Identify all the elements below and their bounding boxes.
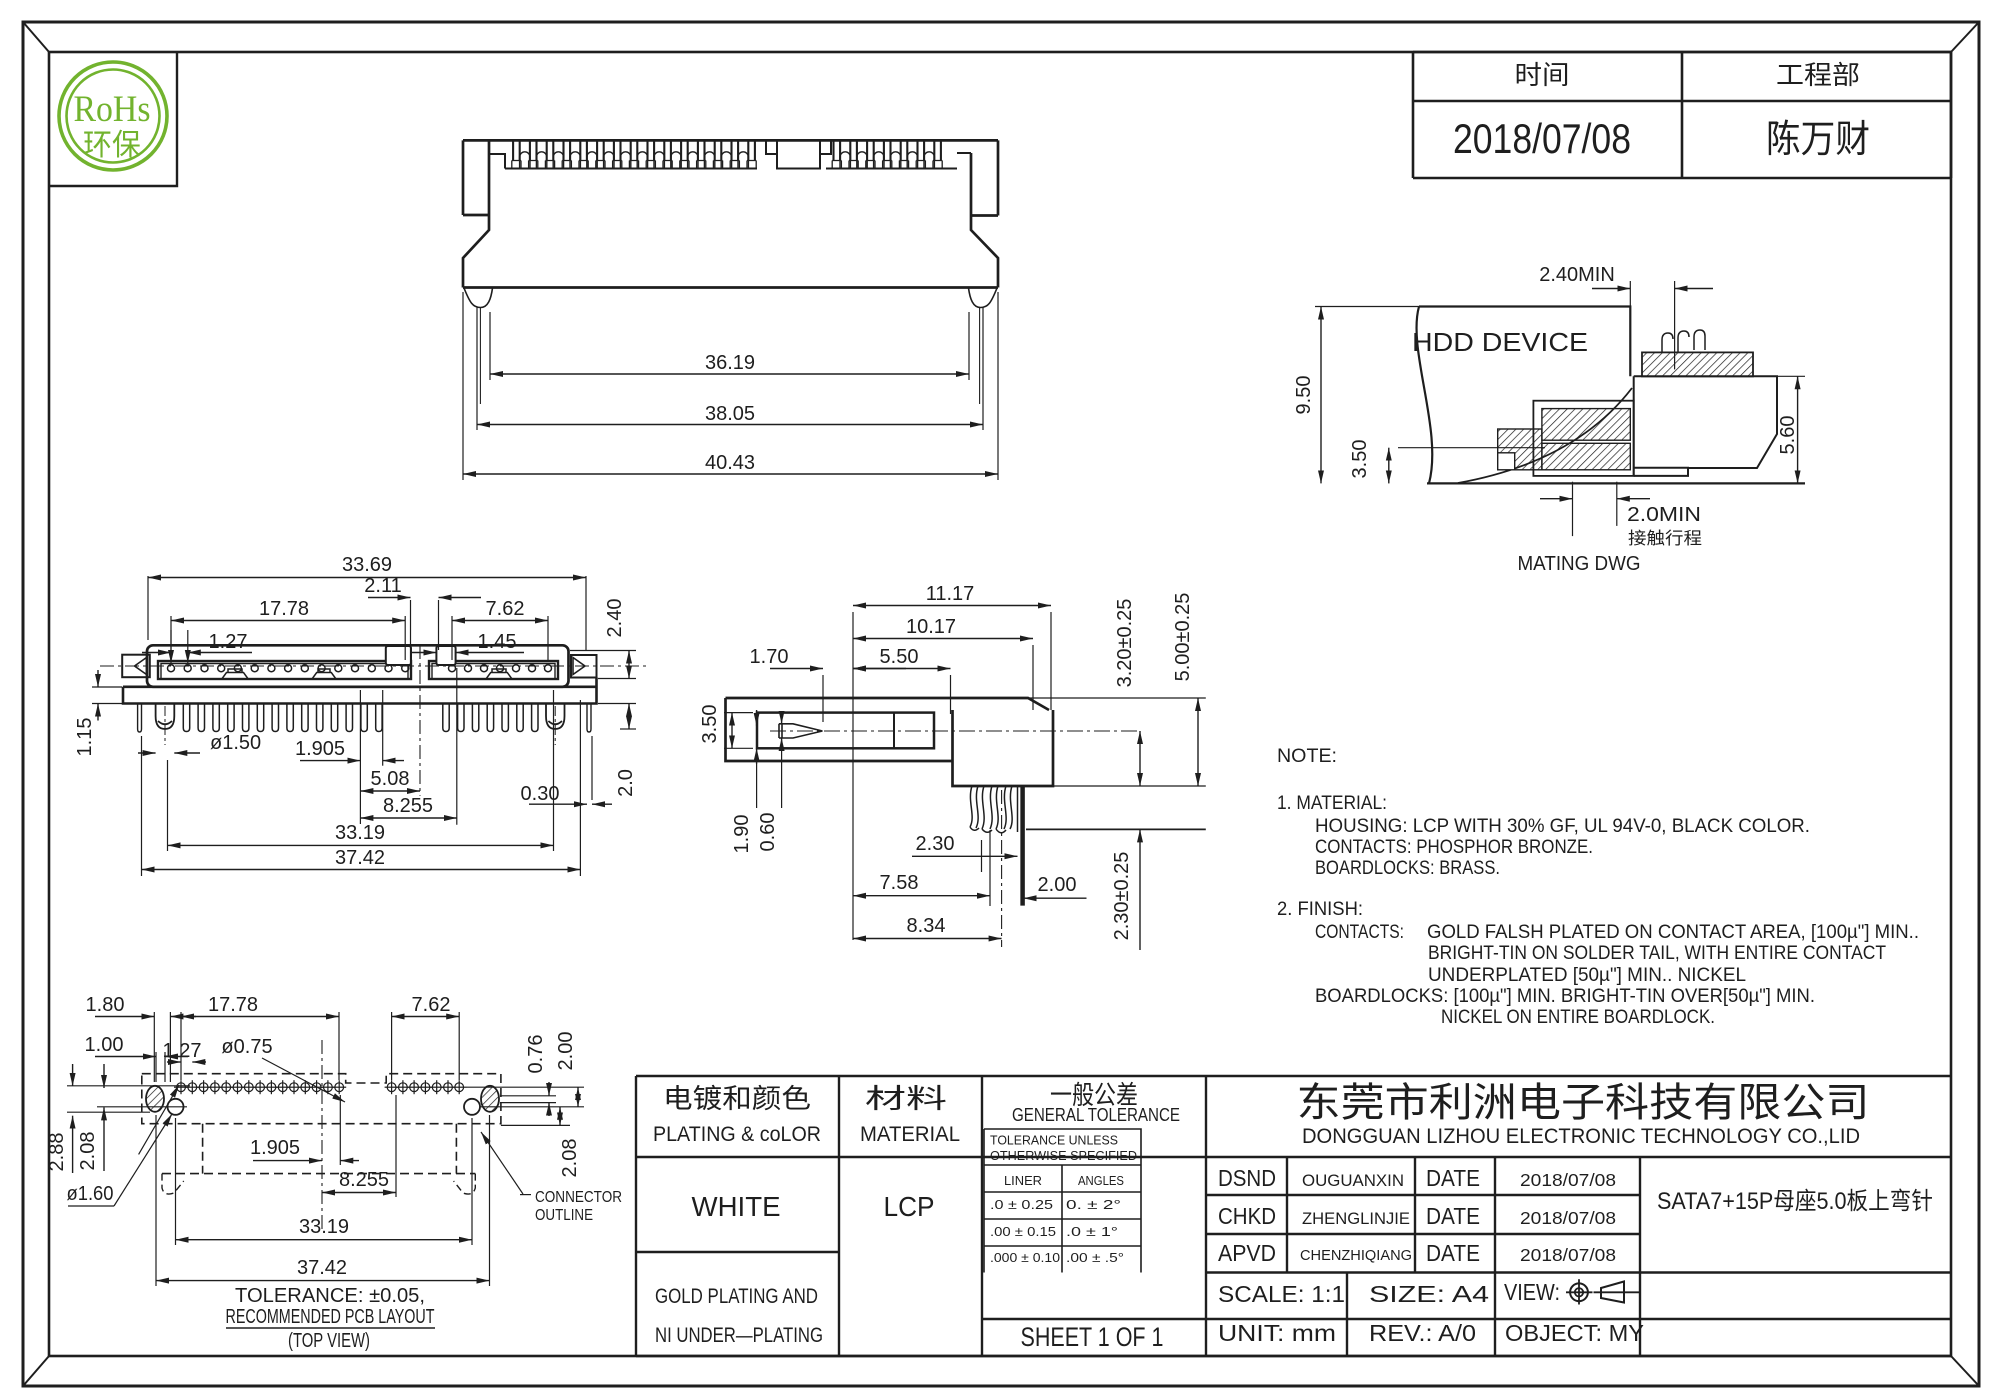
svg-text:1.27: 1.27 [209,631,248,653]
svg-text:DATE: DATE [1426,1203,1480,1229]
svg-text:SHEET 1 OF 1: SHEET 1 OF 1 [1021,1322,1164,1352]
svg-text:2018/07/08: 2018/07/08 [1520,1245,1616,1265]
svg-text:RoHs: RoHs [74,89,151,130]
svg-text:东莞市利洲电子科技有限公司: 东莞市利洲电子科技有限公司 [1297,1081,1870,1125]
svg-text:33.69: 33.69 [342,554,392,576]
svg-text:WHITE: WHITE [692,1191,781,1222]
svg-text:DONGGUAN LIZHOU ELECTRONIC TEC: DONGGUAN LIZHOU ELECTRONIC TECHNOLOGY CO… [1302,1125,1860,1148]
svg-text:VIEW:: VIEW: [1504,1279,1560,1305]
svg-text:CONTACTS: PHOSPHOR BRONZE.: CONTACTS: PHOSPHOR BRONZE. [1315,837,1593,858]
svg-text:38.05: 38.05 [705,403,755,425]
svg-text:BRIGHT-TIN ON SOLDER TAIL,: BRIGHT-TIN ON SOLDER TAIL, WITH ENTIRE C… [1428,943,1886,964]
svg-text:2.0MIN: 2.0MIN [1627,504,1701,526]
svg-text:0. ± 2°: 0. ± 2° [1066,1197,1121,1212]
svg-text:ANGLES: ANGLES [1078,1174,1124,1188]
svg-text:HOUSING: LCP WITH 30% GF,: HOUSING: LCP WITH 30% GF, UL 94V-0, BLAC… [1315,816,1810,837]
svg-text:9.50: 9.50 [1293,376,1315,415]
svg-text:8.255: 8.255 [383,795,433,817]
svg-text:10.17: 10.17 [906,616,956,638]
svg-text:ø1.50: ø1.50 [210,732,261,754]
svg-text:RECOMMENDED PCB LAYOUT: RECOMMENDED PCB LAYOUT [226,1306,435,1328]
svg-text:CONTACTS:: CONTACTS: [1315,922,1404,943]
svg-text:NOTE:: NOTE: [1277,746,1337,767]
svg-text:ø1.60: ø1.60 [67,1183,114,1205]
svg-text:2.08: 2.08 [77,1132,99,1171]
svg-text:LINER: LINER [1004,1173,1042,1188]
svg-text:2.88: 2.88 [46,1133,68,1172]
svg-text:NICKEL ON ENTIRE BOARDLOCK.: NICKEL ON ENTIRE BOARDLOCK. [1441,1007,1715,1028]
svg-text:TOLERANCE: ±0.05,: TOLERANCE: ±0.05, [235,1285,425,1307]
svg-text:MATERIAL: MATERIAL [860,1123,960,1146]
svg-text:2.11: 2.11 [364,575,401,597]
svg-text:2.30±0.25: 2.30±0.25 [1111,852,1133,941]
svg-text:5.00±0.25: 5.00±0.25 [1172,593,1194,682]
svg-text:接触行程: 接触行程 [1628,529,1702,548]
svg-text:BOARDLOCKS: BRASS.: BOARDLOCKS: BRASS. [1315,858,1500,879]
svg-text:GOLD PLATING AND: GOLD PLATING AND [655,1285,818,1308]
svg-text:.0 ± 1°: .0 ± 1° [1066,1224,1118,1239]
svg-text:BOARDLOCKS: [100µ"] MIN. BR: BOARDLOCKS: [100µ"] MIN. BRIGHT-TIN OVER… [1315,986,1815,1007]
svg-text:CHKD: CHKD [1218,1203,1276,1229]
svg-text:2.0: 2.0 [615,769,637,797]
svg-text:1.70: 1.70 [750,646,789,668]
svg-text:SCALE: 1:1: SCALE: 1:1 [1218,1281,1345,1307]
svg-text:UNDERPLATED [50µ"] MIN..: UNDERPLATED [50µ"] MIN.. NICKEL [1428,965,1746,986]
svg-text:17.78: 17.78 [208,994,258,1016]
svg-text:37.42: 37.42 [297,1257,347,1279]
svg-text:5.08: 5.08 [371,768,410,790]
svg-text:1.00: 1.00 [85,1034,124,1056]
svg-text:37.42: 37.42 [335,847,385,869]
svg-text:NI UNDER—PLATING: NI UNDER—PLATING [655,1324,823,1347]
svg-text:DSND: DSND [1218,1165,1276,1191]
svg-text:1.15: 1.15 [74,718,96,757]
svg-text:TOLERANCE UNLESS: TOLERANCE UNLESS [990,1133,1118,1148]
svg-text:2018/07/08: 2018/07/08 [1453,115,1631,162]
svg-text:17.78: 17.78 [259,598,309,620]
svg-text:1.27: 1.27 [163,1040,202,1062]
svg-text:.0 ± 0.25: .0 ± 0.25 [990,1197,1053,1212]
svg-text:2.00: 2.00 [1038,874,1077,896]
svg-text:7.62: 7.62 [486,598,525,620]
svg-text:0.60: 0.60 [757,813,779,852]
svg-text:电镀和颜色: 电镀和颜色 [663,1084,811,1114]
svg-text:SATA7+15P母座5.0板上弯针: SATA7+15P母座5.0板上弯针 [1657,1188,1933,1215]
svg-text:2.30: 2.30 [916,833,955,855]
svg-text:2.08: 2.08 [559,1139,581,1178]
svg-text:REV.: A/0: REV.: A/0 [1369,1320,1476,1346]
svg-text:DATE: DATE [1426,1165,1480,1191]
svg-text:.00 ± .5°: .00 ± .5° [1066,1250,1124,1265]
svg-text:OUGUANXIN: OUGUANXIN [1302,1171,1404,1190]
svg-text:材料: 材料 [865,1084,947,1114]
svg-text:3.50: 3.50 [1349,440,1371,479]
svg-text:2.40: 2.40 [604,599,626,638]
svg-text:CONNECTOR: CONNECTOR [535,1189,622,1206]
svg-text:UNIT: mm: UNIT: mm [1218,1320,1336,1346]
svg-text:.00 ± 0.15: .00 ± 0.15 [990,1224,1056,1239]
svg-text:2.00: 2.00 [555,1032,577,1071]
svg-text:GENERAL TOLERANCE: GENERAL TOLERANCE [1012,1105,1180,1125]
svg-text:.000 ± 0.10: .000 ± 0.10 [990,1250,1060,1265]
svg-text:40.43: 40.43 [705,452,755,474]
svg-text:33.19: 33.19 [335,822,385,844]
svg-text:8.255: 8.255 [339,1169,389,1191]
svg-text:3.50: 3.50 [699,705,721,744]
svg-text:PLATING & coLOR: PLATING & coLOR [653,1123,821,1146]
svg-text:1.80: 1.80 [86,994,125,1016]
svg-text:LCP: LCP [884,1191,935,1222]
svg-text:MATING DWG: MATING DWG [1518,553,1641,575]
svg-text:工程部: 工程部 [1776,60,1860,90]
svg-text:1.45: 1.45 [478,631,517,653]
svg-text:0.76: 0.76 [525,1035,547,1074]
svg-text:33.19: 33.19 [299,1216,349,1238]
svg-text:环保: 环保 [83,129,141,162]
svg-text:2.40MIN: 2.40MIN [1539,264,1615,286]
svg-text:ZHENGLINJIE: ZHENGLINJIE [1302,1209,1410,1228]
svg-text:5.60: 5.60 [1777,416,1799,455]
svg-text:3.20±0.25: 3.20±0.25 [1114,599,1136,688]
svg-text:APVD: APVD [1218,1240,1276,1266]
svg-text:1. MATERIAL:: 1. MATERIAL: [1277,793,1387,814]
svg-text:11.17: 11.17 [926,583,975,605]
svg-text:OUTLINE: OUTLINE [535,1207,593,1224]
svg-text:OTHERWISE SPECIFIED: OTHERWISE SPECIFIED [990,1148,1137,1163]
svg-text:5.50: 5.50 [880,646,919,668]
svg-text:陈万财: 陈万财 [1766,119,1870,161]
svg-text:2018/07/08: 2018/07/08 [1520,1208,1616,1228]
svg-text:2018/07/08: 2018/07/08 [1520,1170,1616,1190]
svg-text:1.905: 1.905 [295,738,345,760]
svg-text:SIZE: A4: SIZE: A4 [1369,1281,1489,1307]
svg-text:CHENZHIQIANG: CHENZHIQIANG [1300,1247,1412,1264]
svg-text:36.19: 36.19 [705,352,755,374]
svg-text:(TOP VIEW): (TOP VIEW) [288,1330,370,1352]
svg-text:GOLD FALSH PLATED ON CONTA: GOLD FALSH PLATED ON CONTACT AREA, [100µ… [1427,922,1919,943]
svg-text:时间: 时间 [1515,60,1570,90]
svg-text:7.58: 7.58 [880,872,919,894]
svg-text:HDD DEVICE: HDD DEVICE [1412,327,1588,357]
svg-text:ø0.75: ø0.75 [221,1036,272,1058]
svg-text:DATE: DATE [1426,1240,1480,1266]
svg-text:1.90: 1.90 [731,815,753,854]
svg-text:2. FINISH:: 2. FINISH: [1277,899,1363,920]
svg-text:1.905: 1.905 [250,1137,300,1159]
svg-text:8.34: 8.34 [907,915,946,937]
svg-text:7.62: 7.62 [412,994,451,1016]
svg-text:OBJECT: MY: OBJECT: MY [1505,1320,1644,1346]
